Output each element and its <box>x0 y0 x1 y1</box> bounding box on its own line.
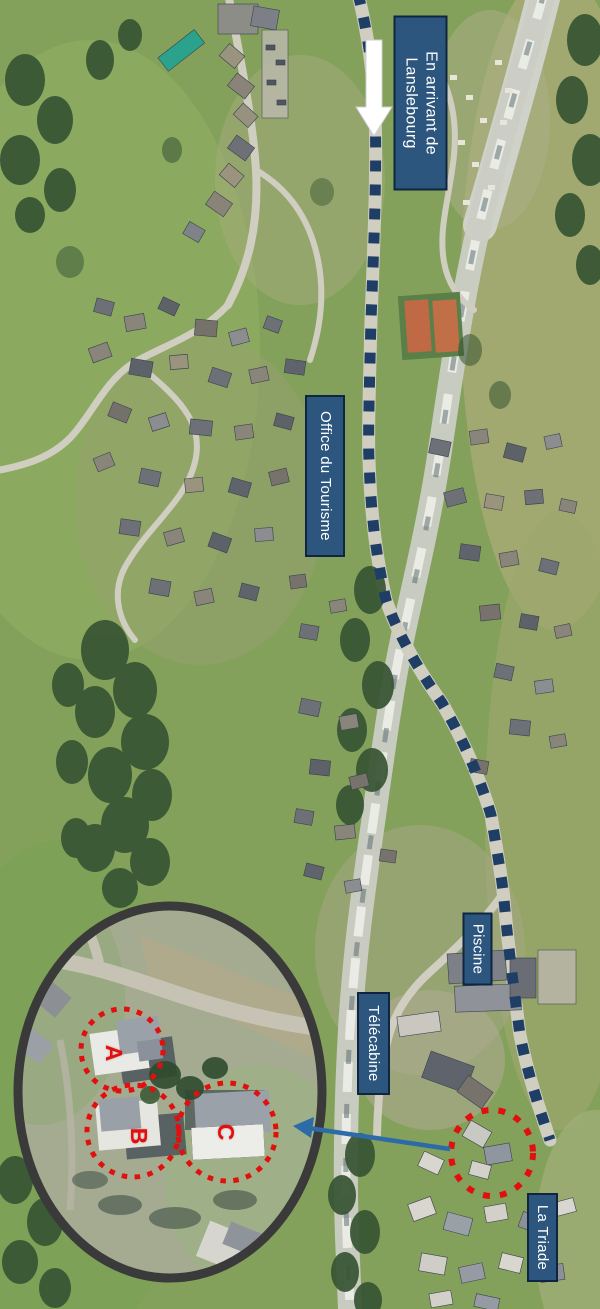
aerial-map: En arrivant de Lanslebourg Office du Tou… <box>0 0 600 1309</box>
label-arrival-direction: En arrivant de Lanslebourg <box>393 15 447 190</box>
tennis-courts <box>398 292 464 360</box>
label-piscine: Piscine <box>462 912 492 985</box>
inset-marker-b: B <box>124 1121 154 1151</box>
aerial-scene <box>0 0 600 1309</box>
label-arrival-line1: En arrivant de <box>420 51 440 155</box>
label-la-triade: La Triade <box>527 1193 558 1282</box>
label-telecabine: Télécabine <box>357 992 390 1095</box>
label-office-du-tourisme: Office du Tourisme <box>305 395 345 557</box>
inset-marker-c: C <box>211 1117 241 1147</box>
inset-marker-a: A <box>99 1038 129 1068</box>
label-arrival-line2: Lanslebourg <box>400 57 420 148</box>
